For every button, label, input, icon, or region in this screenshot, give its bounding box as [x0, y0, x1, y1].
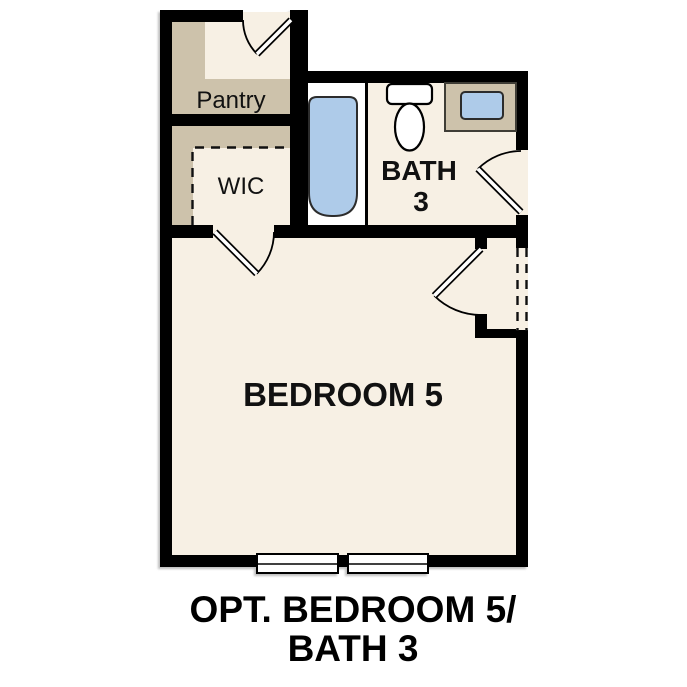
sink-icon	[461, 92, 503, 119]
bath-number: 3	[413, 186, 429, 217]
wall-pantry-wic-divider	[160, 114, 308, 126]
bathtub-icon	[309, 97, 357, 216]
wic-label: WIC	[218, 173, 265, 200]
wall-bedroom-top-left	[160, 225, 213, 238]
wall-window-mullion	[338, 555, 348, 567]
floorplan-canvas: Pantry WIC BATH 3 BEDROOM 5 OPT. BEDROOM…	[0, 0, 687, 687]
toilet-bowl-icon	[395, 104, 424, 151]
wall-jamb-connector	[475, 329, 516, 338]
wall-bedroom-door-top-jamb	[475, 238, 487, 249]
plan-caption: OPT. BEDROOM 5/ BATH 3	[190, 589, 517, 669]
floorplan-page: Pantry WIC BATH 3 BEDROOM 5 OPT. BEDROOM…	[0, 0, 687, 687]
wall-right-upper	[516, 71, 528, 150]
bedroom-label: BEDROOM 5	[243, 376, 443, 413]
caption-line-2: BATH 3	[288, 628, 419, 669]
caption-line-1: OPT. BEDROOM 5/	[190, 589, 517, 630]
wall-pantry-top	[160, 10, 243, 22]
wall-bedroom-top-right	[274, 225, 528, 238]
toilet-tank-icon	[387, 84, 432, 104]
wall-right-lower	[516, 330, 528, 567]
pantry-door-opening	[243, 12, 290, 24]
bath-label: BATH	[381, 155, 457, 186]
wall-bottom-left	[160, 555, 257, 567]
pantry-label: Pantry	[196, 87, 265, 114]
wall-bath-top	[290, 71, 528, 83]
wall-tub-divider	[365, 83, 368, 225]
wall-left	[160, 10, 172, 567]
wall-bottom-right	[428, 555, 528, 567]
